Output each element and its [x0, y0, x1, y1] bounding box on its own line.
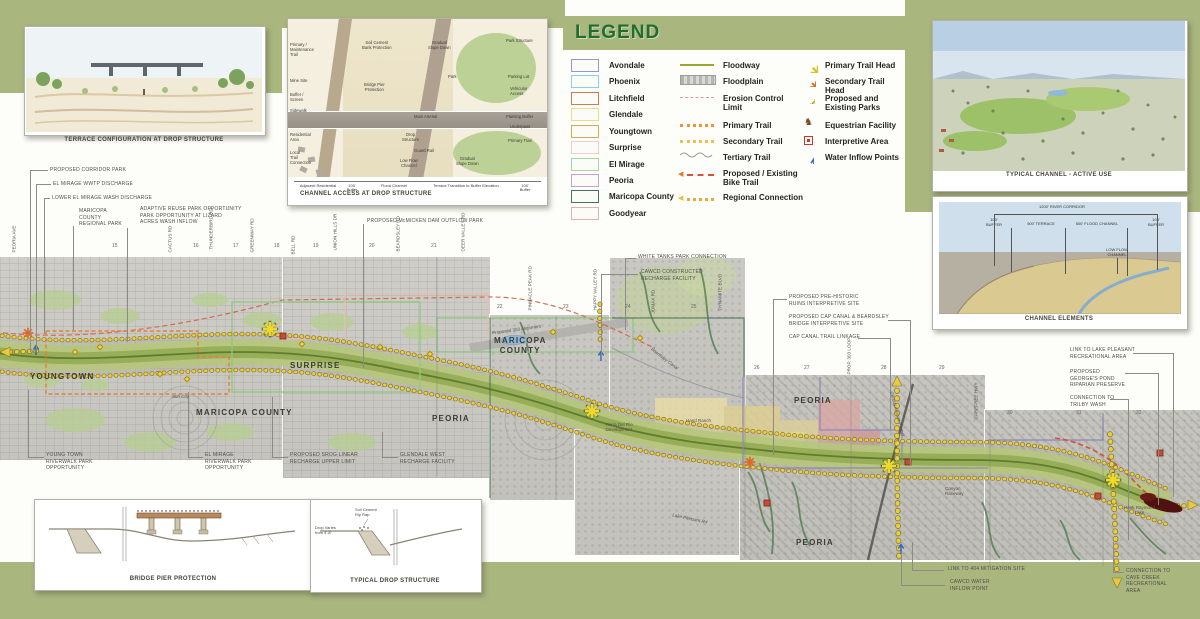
annotation: Guard Rail — [414, 149, 434, 154]
road-label: UNION HILLS DR — [334, 205, 341, 251]
legend-label: Peoria — [609, 176, 633, 185]
map-tile-peoria-desert — [740, 375, 985, 560]
leader-line — [1113, 572, 1124, 573]
road-label: DYNAMITE BLVD — [719, 265, 726, 311]
leader-line — [773, 299, 774, 455]
leader-line — [773, 299, 787, 300]
inset-caption: BRIDGE PIER PROTECTION — [34, 576, 312, 583]
section-number: 28 — [881, 366, 887, 371]
road-label: PEORIA AVE — [13, 207, 20, 253]
callout: CONNECTION TO CAVE CREEK RECREATIONAL AR… — [1126, 568, 1170, 594]
leader-line — [127, 228, 128, 342]
regional-connection-arrow-icon: ◀ — [678, 195, 683, 202]
annotation: Sidewalk — [290, 109, 320, 114]
leader-line — [36, 184, 37, 350]
leader-line — [890, 338, 891, 430]
annotation: Gradual Slope Down — [456, 157, 479, 167]
section-number: 15 — [112, 244, 118, 249]
section-number: 22 — [497, 305, 503, 310]
legend-label: Glendale — [609, 110, 643, 119]
section-number: 29 — [939, 366, 945, 371]
inset-channel-access: Primary / Maintenance Trail Mine Site Bu… — [287, 18, 548, 206]
swatch-glendale — [571, 108, 599, 121]
leader-line — [30, 170, 48, 171]
legend-label: Secondary Trail Head — [825, 77, 905, 95]
leader-line — [901, 585, 945, 586]
legend-label: Proposed and Existing Parks — [825, 94, 880, 112]
place-label-tierra-del-rio: Tierra Del Rio Development — [605, 422, 633, 433]
typical-drop-sketch — [314, 503, 478, 575]
legend-label: El Mirage — [609, 160, 645, 169]
swatch-litchfield — [571, 92, 599, 105]
place-label-sun-city: Sun City — [172, 394, 189, 399]
dim-leader — [1127, 228, 1128, 276]
secondary-trailhead-icon — [803, 74, 816, 87]
callout: WHITE TANKS PARK CONNECTION — [638, 254, 727, 261]
annotation: Underpass — [510, 125, 546, 130]
legend-label: Primary Trail — [723, 121, 771, 130]
section-number: 16 — [193, 244, 199, 249]
city-label-peoria-south: PEORIA — [796, 538, 834, 548]
callout: ADAPTIVE REUSE PARK OPPORTUNITY PARK OPP… — [140, 206, 242, 226]
dim-label: 1200' RIVER CORRIDOR — [997, 205, 1127, 210]
section-number: 26 — [754, 366, 760, 371]
leader-line — [601, 274, 638, 275]
legend-label: Floodplain — [723, 77, 763, 86]
leader-line — [912, 570, 944, 571]
section-number: 23 — [563, 305, 569, 310]
swatch-surprise — [571, 141, 599, 154]
callout: GLENDALE WEST RECHARGE FACILITY — [400, 452, 455, 465]
dim-label: 100' BUFFER — [1143, 218, 1169, 227]
leader-line — [858, 338, 890, 339]
annotation: Parking Lot — [508, 75, 546, 80]
primary-trailhead-icon — [801, 56, 818, 73]
annotation: Primary Trail — [508, 139, 546, 144]
annotation: Drop Structure — [402, 133, 419, 143]
place-label-canyon-raceway: Canyon Raceway — [945, 486, 964, 497]
legend-title: LEGEND — [575, 22, 660, 44]
section-number: 19 — [313, 244, 319, 249]
dim-leader — [1065, 228, 1066, 274]
callout: CAWCD WATER INFLOW POINT — [950, 579, 990, 592]
callout: PROPOSED CORRIDOR PARK — [50, 167, 126, 174]
equestrian-icon: ♞ — [804, 118, 813, 128]
legend-label: Youngtown — [609, 127, 652, 136]
legend-label: Secondary Trail — [723, 137, 783, 146]
leader-line — [188, 392, 189, 457]
erosion-line-sample — [680, 97, 714, 98]
annotation: Main Arterial — [414, 115, 437, 120]
annotation: Vehicular Access — [510, 87, 546, 97]
leader-line — [912, 542, 913, 570]
legend-label: Tertiary Trail — [723, 153, 770, 162]
dim-leader — [994, 214, 995, 266]
city-label-peoria-north: PEORIA — [794, 396, 832, 406]
legend-label: Goodyear — [609, 209, 646, 218]
road-label: GREENWAY RD — [251, 207, 258, 253]
inset-caption: TYPICAL CHANNEL - ACTIVE USE — [932, 172, 1186, 179]
road-label: BELL RD — [292, 209, 299, 255]
leader-line — [1113, 542, 1114, 572]
bike-trail-sample — [687, 174, 714, 176]
section-number: 20 — [369, 244, 375, 249]
annotation: Soil Cement Bank Protection — [362, 41, 392, 51]
place-label-carefree-hwy: CAREFREE HWY — [975, 374, 982, 420]
leader-line — [363, 224, 364, 368]
leader-line — [36, 184, 51, 185]
callout: YOUNG TOWN RIVERWALK PARK OPPORTUNITY — [46, 452, 93, 472]
dim-leader — [1117, 258, 1118, 274]
annotation: Local Trail Connection — [290, 151, 320, 165]
city-label-surprise: SURPRISE — [290, 361, 341, 371]
swatch-maricopa-county — [571, 190, 599, 203]
swatch-avondale — [571, 59, 599, 72]
legend-label: Litchfield — [609, 94, 645, 103]
section-number: 18 — [274, 244, 280, 249]
city-label-maricopa-county-west: MARICOPA COUNTY — [196, 408, 293, 418]
legend-label: Interpretive Area — [825, 137, 888, 146]
leader-line — [30, 170, 31, 352]
swatch-goodyear — [571, 207, 599, 220]
inset-caption: CHANNEL ACCESS AT DROP STRUCTURE — [300, 191, 470, 198]
leader-line — [73, 226, 74, 330]
terrace-sketch — [25, 27, 263, 133]
leader-line — [382, 457, 398, 458]
leader-line — [28, 390, 29, 457]
annotation: Primary / Maintenance Trail — [290, 43, 320, 57]
leader-line — [188, 457, 203, 458]
leader-line — [910, 320, 911, 465]
callout: PROPOSED SROG LINEAR RECHARGE UPPER LIMI… — [290, 452, 358, 465]
leader-line — [625, 258, 626, 330]
annotation: Buffer / Screen — [290, 93, 320, 103]
city-label-peoria-west: PEORIA — [432, 414, 470, 424]
legend-label: Regional Connection — [723, 193, 803, 202]
section-number: 27 — [804, 366, 810, 371]
road-label: PINNACLE PEAK RD — [529, 265, 536, 311]
bridge-pier-sketch — [41, 503, 317, 575]
callout: LINK TO 404 MITIGATION SITE — [948, 566, 1025, 573]
typical-channel-sketch — [933, 21, 1185, 171]
tertiary-trail-sample — [680, 150, 714, 159]
leader-line — [601, 274, 602, 358]
inset-caption: TYPICAL DROP STRUCTURE — [310, 578, 480, 585]
dim-label: LOW FLOW CHANNEL — [1097, 248, 1137, 257]
leader-line — [28, 457, 44, 458]
dim-label: 500' FLOOD CHANNEL — [1067, 222, 1127, 227]
place-label-hand-ranch: Hand Ranch — [686, 418, 711, 423]
legend-label: Maricopa County — [609, 192, 674, 201]
leader-line — [901, 556, 902, 585]
legend-label: Phoenix — [609, 77, 640, 86]
leader-line — [1133, 353, 1173, 354]
master-plan-sheet: PROPOSED CORRIDOR PARK EL MIRAGE WWTP DI… — [0, 0, 1200, 619]
annotation: Park — [448, 75, 457, 80]
parks-icon — [804, 93, 815, 104]
scale-label: 100' Buffer — [516, 184, 534, 193]
leader-line — [44, 198, 45, 334]
legend-label: Floodway — [723, 61, 760, 70]
road-label: DEER VALLEY RD — [462, 206, 469, 252]
inset-caption: TERRACE CONFIGURATION AT DROP STRUCTURE — [24, 137, 264, 144]
annotation: Gradual Slope Down — [428, 41, 451, 51]
callout: PROPOSED McMICKEN DAM OUTFLOW PARK — [367, 218, 483, 225]
leader-line — [625, 258, 636, 259]
road-label: HAPPY VALLEY RD — [594, 265, 601, 311]
leader-line — [1173, 353, 1174, 497]
callout: LINK TO LAKE PLEASANT RECREATIONAL AREA — [1070, 347, 1135, 360]
callout: PROPOSED CAP CANAL & BEARDSLEY BRIDGE IN… — [789, 314, 889, 327]
legend-panel: LEGEND Avondale Phoenix Litchfield Glend… — [563, 16, 905, 228]
legend-label: Water Inflow Points — [825, 153, 899, 162]
floodway-line-sample — [680, 64, 714, 66]
swatch-peoria — [571, 174, 599, 187]
scale-label: Flood Channel — [374, 184, 414, 188]
leader-line — [1125, 373, 1158, 374]
swatch-youngtown — [571, 125, 599, 138]
inset-channel-elements: 1200' RIVER CORRIDOR 100' BUFFER 500' TE… — [932, 196, 1188, 330]
scale-bar — [294, 181, 541, 182]
inset-caption: CHANNEL ELEMENTS — [932, 316, 1186, 323]
leader-line — [1158, 373, 1159, 505]
place-label-hank-raymond-lake: Hank Raymond Lake — [1124, 505, 1155, 516]
scale-label: Adjacent Residential — [296, 184, 340, 188]
annotation: Soil Cement Rip Rap — [355, 508, 391, 517]
section-number: 32 — [1136, 411, 1142, 416]
swatch-el-mirage — [571, 158, 599, 171]
section-number: 17 — [233, 244, 239, 249]
road-label: BEARDSLEY RD — [397, 206, 404, 252]
leader-line — [272, 397, 273, 457]
callout: CONNECTION TO TRILBY WASH — [1070, 395, 1114, 408]
scale-label: Terrace Transition to Buffer Elevation — [426, 184, 506, 188]
leader-line — [888, 320, 910, 321]
map-tile-east — [985, 410, 1200, 560]
channel-access-drawing: Primary / Maintenance Trail Mine Site Bu… — [288, 19, 547, 177]
callout: PROPOSED GEORGE'S POND RIPARIAN PRESERVE — [1070, 369, 1125, 389]
water-inflow-icon — [805, 150, 814, 164]
dim-leader — [1011, 228, 1012, 272]
dim-label: 500' TERRACE — [1019, 222, 1063, 227]
leader-line — [272, 457, 288, 458]
callout: LOWER EL MIRAGE WASH DISCHARGE — [52, 195, 152, 202]
interpretive-area-icon — [804, 136, 813, 145]
map-tile-west-urban — [0, 257, 310, 460]
dim-leader — [1157, 214, 1158, 270]
legend-label: Primary Trail Head — [825, 61, 895, 70]
section-number: 30 — [1007, 411, 1013, 416]
secondary-trail-sample — [680, 140, 714, 143]
dim-line — [994, 214, 1157, 215]
annotation: Low Flow Channel — [400, 159, 418, 169]
map-tile-lake-pleasant-rd — [575, 430, 745, 555]
legend-label: Equestrian Facility — [825, 121, 896, 130]
primary-trail-sample — [680, 124, 714, 127]
callout: MARICOPA COUNTY REGIONAL PARK — [79, 208, 122, 228]
legend-header: LEGEND — [563, 16, 905, 50]
legend-label: Surprise — [609, 143, 641, 152]
section-number: 21 — [431, 244, 437, 249]
inset-typical-channel — [932, 20, 1188, 192]
section-number: 31 — [1076, 411, 1082, 416]
annotation: Mine Site — [290, 79, 320, 84]
inset-terrace-configuration — [24, 26, 266, 136]
callout: CAP CANAL TRAIL LINKAGE — [789, 334, 860, 341]
legend-label: Avondale — [609, 61, 645, 70]
house — [299, 166, 307, 173]
legend-label: Proposed / Existing Bike Trail — [723, 169, 798, 187]
swatch-phoenix — [571, 75, 599, 88]
channel-elements-drawing: 1200' RIVER CORRIDOR 100' BUFFER 500' TE… — [939, 202, 1181, 314]
city-label-maricopa-county-mid: MARICOPA COUNTY — [494, 336, 547, 356]
annotation: Residential Area — [290, 133, 320, 143]
callout: CAWCD CONSTRUCTED RECHARGE FACILITY — [641, 269, 703, 282]
legend-label: Erosion Control Limit — [723, 94, 783, 112]
annotation: Bridge Pier Protection — [364, 83, 385, 93]
floodplain-sample — [680, 75, 716, 85]
regional-connection-sample — [687, 198, 714, 201]
annotation: Planting Buffer — [506, 115, 546, 120]
section-number: 25 — [691, 305, 697, 310]
callout: EL MIRAGE WWTP DISCHARGE — [53, 181, 133, 188]
leader-line — [1128, 399, 1129, 540]
callout: EL MIRAGE RIVERWALK PARK OPPORTUNITY — [205, 452, 252, 472]
city-label-youngtown: YOUNGTOWN — [30, 372, 94, 382]
bike-trail-arrow-icon: ◀ — [678, 171, 683, 178]
section-number: 24 — [625, 305, 631, 310]
callout: PROPOSED PRE-HISTORIC RUINS INTERPRETIVE… — [789, 294, 859, 307]
leader-line — [382, 432, 383, 457]
annotation: Park Structure — [506, 39, 546, 44]
annotation: Drop Varies from 4'-8' — [315, 526, 345, 535]
